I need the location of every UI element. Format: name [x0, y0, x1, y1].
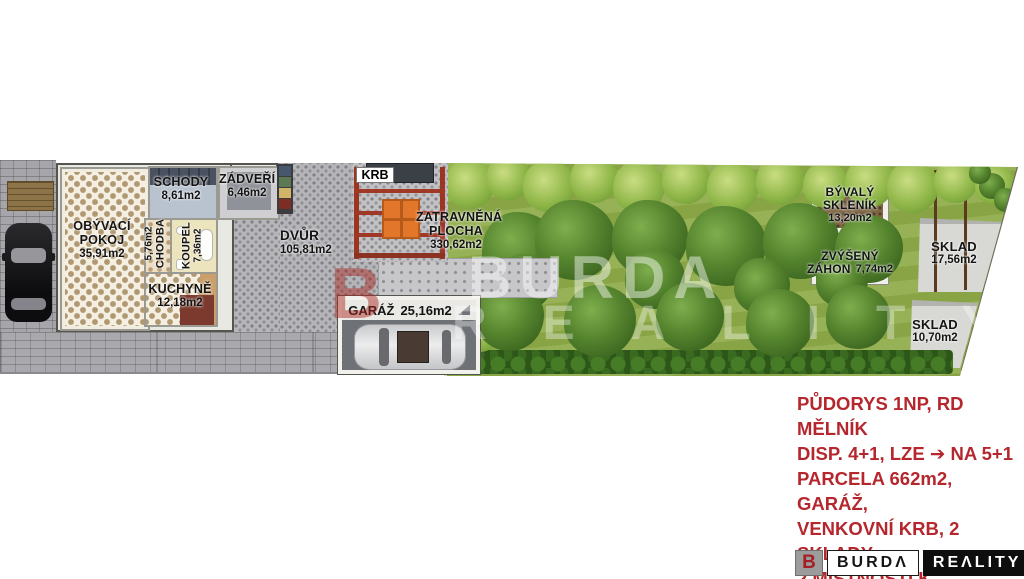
- area-value: 330,62m2: [416, 239, 496, 252]
- tree-dark: [969, 162, 991, 184]
- room-name: OBÝVACÍ: [64, 220, 140, 234]
- garage-car-sunroof: [397, 331, 429, 363]
- label-bath: KOUPEL 7,36m2: [180, 218, 203, 274]
- tree-light: [887, 161, 939, 213]
- area-value: 105,81m2: [280, 244, 358, 257]
- room-name: SCHODY: [150, 176, 212, 190]
- room-name: POKOJ: [64, 234, 140, 248]
- area-name: SKLAD: [903, 318, 967, 332]
- car-mirror-left: [2, 253, 7, 261]
- fence-top: [444, 160, 1020, 163]
- label-raised-bed: ZVÝŠENÝ ZÁHON 7,74m2: [808, 250, 892, 276]
- room-area: 5,76m2: [143, 218, 154, 270]
- label-living-room: OBÝVACÍ POKOJ 35,91m2: [64, 220, 140, 260]
- tree-dark: [826, 285, 890, 349]
- room-name: KUCHYNĚ: [146, 283, 214, 297]
- label-stairs: SCHODY 8,61m2: [150, 176, 212, 202]
- garage: GARÁŽ 25,16m2: [338, 296, 480, 374]
- car-windshield: [11, 248, 46, 263]
- area-name: KRB: [361, 168, 388, 182]
- site-plan-image: GARÁŽ 25,16m2 OBÝVACÍ POKOJ 35,91m2 SCHO…: [0, 0, 1024, 579]
- room-area: 6,46m2: [219, 187, 275, 200]
- area-value: 13,20m2: [814, 212, 886, 224]
- car-rear-window: [11, 298, 46, 310]
- area-name: PLOCHA: [416, 225, 496, 239]
- tree-light: [707, 161, 759, 213]
- area-name: SKLAD: [920, 240, 988, 254]
- description-line: DISP. 4+1, LZE ➔ NA 5+1: [797, 441, 1019, 466]
- pergola-beam: [354, 189, 445, 193]
- room-name: CHODBA: [154, 218, 166, 270]
- waste-bins: [277, 164, 293, 214]
- tree-light: [570, 155, 618, 203]
- label-greenhouse: BÝVALÝ SKLENÍK 13,20m2: [814, 186, 886, 224]
- garage-car-rear-window: [442, 330, 451, 364]
- car-mirror-right: [50, 253, 55, 261]
- description-line: PŮDORYS 1NP, RD MĚLNÍK: [797, 391, 1019, 441]
- bin-blue: [279, 166, 291, 176]
- parked-car-garage: [354, 324, 466, 370]
- garage-label-flag: [458, 305, 470, 315]
- room-area: 8,61m2: [150, 190, 212, 203]
- logo-b-icon: B: [795, 550, 823, 576]
- label-vestibule: ZÁDVEŘÍ 6,46m2: [219, 173, 275, 199]
- tree-light: [662, 156, 710, 204]
- tree-dark: [746, 289, 814, 357]
- area-name: ZÁHON: [807, 263, 851, 276]
- entrance-steps: [7, 181, 54, 211]
- logo-reality-text: REΛLITY: [923, 550, 1024, 576]
- label-lawn: ZATRAVNĚNÁ PLOCHA 330,62m2: [416, 211, 496, 251]
- tree-light: [756, 157, 804, 205]
- garage-car-windshield: [379, 328, 389, 366]
- room-area: 12,18m2: [146, 297, 214, 310]
- area-name: SKLENÍK: [814, 199, 886, 212]
- garage-name: GARÁŽ: [348, 303, 394, 318]
- room-name: ZÁDVEŘÍ: [219, 173, 275, 187]
- description-line: PARCELA 662m2, GARÁŽ,: [797, 466, 1019, 516]
- bin-red: [279, 199, 291, 209]
- label-shed-1: SKLAD 17,56m2: [920, 240, 988, 267]
- garage-label-band: GARÁŽ 25,16m2: [342, 300, 476, 320]
- pergola-beam: [354, 253, 445, 258]
- bin-yellow: [279, 188, 291, 198]
- patio-furniture: [382, 199, 420, 239]
- burda-reality-logo: B BURDΛ REΛLITY: [795, 550, 1024, 576]
- area-value: 7,74m2: [856, 263, 893, 276]
- label-kitchen: KUCHYNĚ 12,18m2: [146, 283, 214, 309]
- area-name: DVŮR: [280, 229, 358, 244]
- room-area: 7,36m2: [193, 218, 204, 274]
- garden-path: [378, 258, 558, 298]
- label-fireplace: KRB: [356, 167, 394, 183]
- area-value: 17,56m2: [920, 254, 988, 267]
- garage-area: 25,16m2: [400, 303, 451, 318]
- label-courtyard: DVŮR 105,81m2: [268, 229, 358, 256]
- label-hall: 5,76m2 CHODBA: [143, 218, 166, 270]
- area-name: ZATRAVNĚNÁ: [416, 211, 496, 225]
- bin-green: [279, 177, 291, 187]
- label-shed-2: SKLAD 10,70m2: [903, 318, 967, 345]
- room-area: 35,91m2: [64, 248, 140, 261]
- tree-dark: [564, 285, 636, 357]
- tree-dark: [656, 283, 724, 351]
- room-name: KOUPEL: [180, 218, 192, 274]
- logo-burda-text: BURDΛ: [827, 550, 919, 576]
- area-value: 10,70m2: [903, 332, 967, 345]
- parked-car-street: [5, 223, 52, 322]
